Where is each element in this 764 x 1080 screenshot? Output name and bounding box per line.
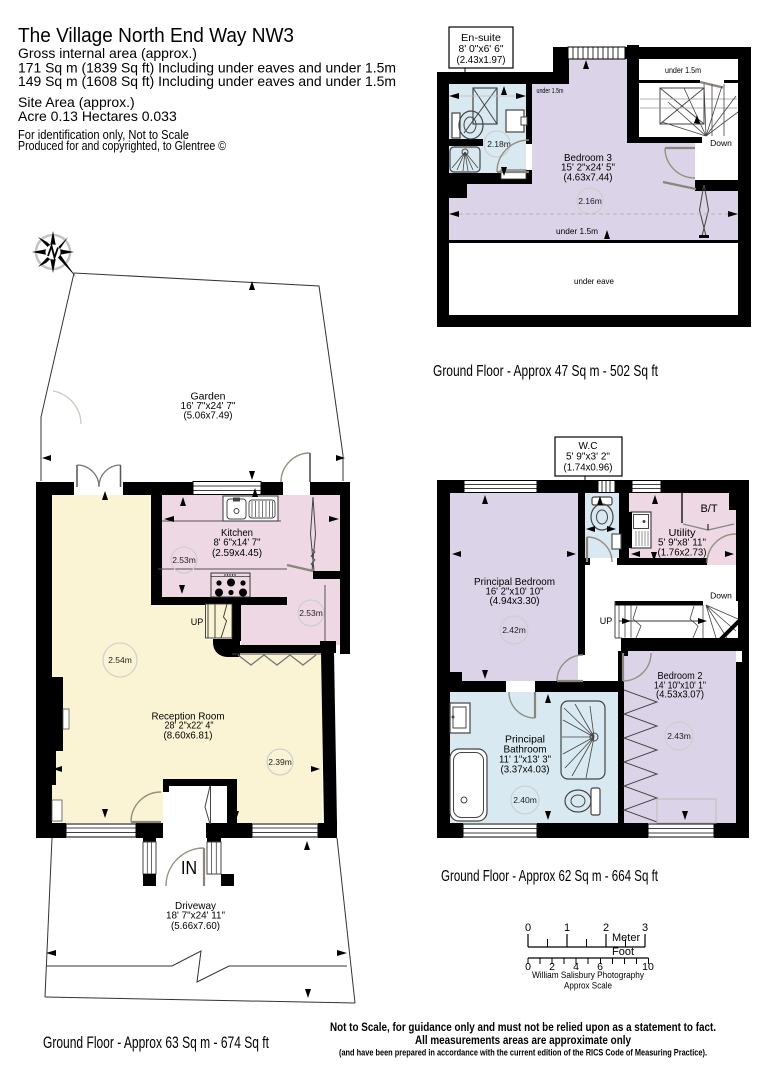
svg-text:(and have been prepared in acc: (and have been prepared in accordance wi…	[339, 1048, 707, 1059]
svg-text:(1.76x2.73): (1.76x2.73)	[658, 548, 707, 559]
svg-text:(8.60x6.81): (8.60x6.81)	[164, 730, 213, 742]
svg-text:149 Sq m (1608 Sq ft) Includin: 149 Sq m (1608 Sq ft) Including under ea…	[18, 73, 396, 89]
svg-text:2.43m: 2.43m	[667, 731, 691, 741]
svg-text:(4.53x3.07): (4.53x3.07)	[656, 689, 704, 701]
svg-text:Down: Down	[710, 591, 732, 601]
svg-text:William Salisbury Photography: William Salisbury Photography	[532, 970, 644, 981]
svg-text:2.18m: 2.18m	[487, 139, 511, 149]
svg-text:2.53m: 2.53m	[172, 555, 196, 565]
svg-text:2.16m: 2.16m	[578, 196, 602, 206]
svg-text:The Village North End Way NW3: The Village North End Way NW3	[18, 24, 294, 47]
svg-text:Approx Scale: Approx Scale	[564, 981, 612, 992]
svg-text:Not to Scale, for guidance onl: Not to Scale, for guidance only and must…	[330, 1020, 716, 1034]
svg-text:(4.63x7.44): (4.63x7.44)	[564, 171, 613, 183]
svg-text:(4.94x3.30): (4.94x3.30)	[490, 595, 540, 607]
svg-text:B/T: B/T	[700, 503, 717, 515]
svg-text:under eave: under eave	[574, 276, 614, 286]
svg-text:(2.59x4.45): (2.59x4.45)	[212, 547, 262, 559]
svg-text:2: 2	[603, 922, 609, 934]
svg-text:2.42m: 2.42m	[502, 625, 526, 635]
svg-text:0: 0	[525, 961, 531, 973]
svg-text:(5.06x7.49): (5.06x7.49)	[184, 410, 233, 422]
svg-text:Acre 0.13 Hectares 0.033: Acre 0.13 Hectares 0.033	[18, 108, 177, 124]
svg-text:2.54m: 2.54m	[108, 655, 132, 665]
svg-text:5' 9"x3' 2": 5' 9"x3' 2"	[566, 452, 610, 463]
svg-text:Ground Floor - Approx 63 Sq m: Ground Floor - Approx 63 Sq m - 674 Sq f…	[43, 1033, 269, 1052]
svg-text:Meter: Meter	[612, 932, 640, 944]
svg-text:2.39m: 2.39m	[268, 757, 292, 767]
svg-text:3: 3	[642, 922, 648, 934]
svg-text:0: 0	[525, 922, 531, 934]
svg-text:W.C: W.C	[579, 441, 598, 452]
svg-text:Ground Floor - Approx 47 Sq m: Ground Floor - Approx 47 Sq m - 502 Sq f…	[433, 363, 658, 380]
svg-text:1: 1	[564, 922, 570, 934]
svg-text:(2.43x1.97): (2.43x1.97)	[457, 55, 506, 66]
svg-text:under 1.5m: under 1.5m	[665, 65, 701, 75]
svg-text:2.40m: 2.40m	[513, 795, 537, 805]
svg-text:Down: Down	[710, 138, 732, 148]
svg-text:En-suite: En-suite	[461, 33, 501, 44]
svg-text:under 1.5m: under 1.5m	[537, 86, 564, 95]
svg-text:(1.74x0.96): (1.74x0.96)	[564, 463, 613, 474]
svg-text:2.53m: 2.53m	[299, 608, 323, 618]
svg-text:All measurements areas are app: All measurements areas are approximate o…	[415, 1033, 631, 1047]
svg-text:UP: UP	[191, 617, 204, 627]
svg-text:(3.37x4.03): (3.37x4.03)	[501, 763, 550, 775]
svg-text:under 1.5m: under 1.5m	[556, 226, 598, 236]
svg-text:8' 0"x6' 6": 8' 0"x6' 6"	[459, 44, 504, 55]
svg-text:Foot: Foot	[612, 946, 634, 958]
svg-text:IN: IN	[181, 858, 197, 878]
svg-text:Produced for and copyrighted,: Produced for and copyrighted, to Glentre…	[18, 139, 227, 153]
svg-text:UP: UP	[600, 616, 613, 626]
svg-text:Ground Floor - Approx 62 Sq m: Ground Floor - Approx 62 Sq m - 664 Sq f…	[441, 868, 658, 885]
svg-text:(5.66x7.60): (5.66x7.60)	[171, 920, 220, 932]
